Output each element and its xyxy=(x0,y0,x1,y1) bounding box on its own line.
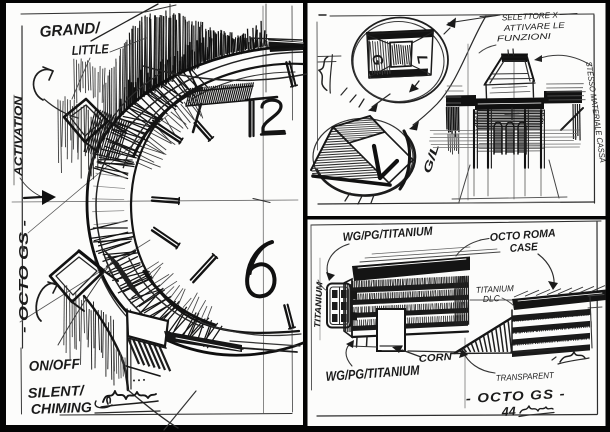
svg-text:CORN: CORN xyxy=(418,352,453,365)
svg-text:44: 44 xyxy=(500,404,516,419)
svg-text:LITTLE: LITTLE xyxy=(71,41,109,58)
svg-text:ON/OFF: ON/OFF xyxy=(28,355,80,374)
svg-text:DLC: DLC xyxy=(483,293,501,304)
svg-text:ACTIVATION: ACTIVATION xyxy=(13,95,25,177)
svg-text:SILENT/: SILENT/ xyxy=(27,382,86,401)
svg-text:CASE: CASE xyxy=(509,241,538,255)
svg-text:CHIMING: CHIMING xyxy=(31,399,93,417)
svg-text:- OCTO GS -: - OCTO GS - xyxy=(17,220,31,333)
